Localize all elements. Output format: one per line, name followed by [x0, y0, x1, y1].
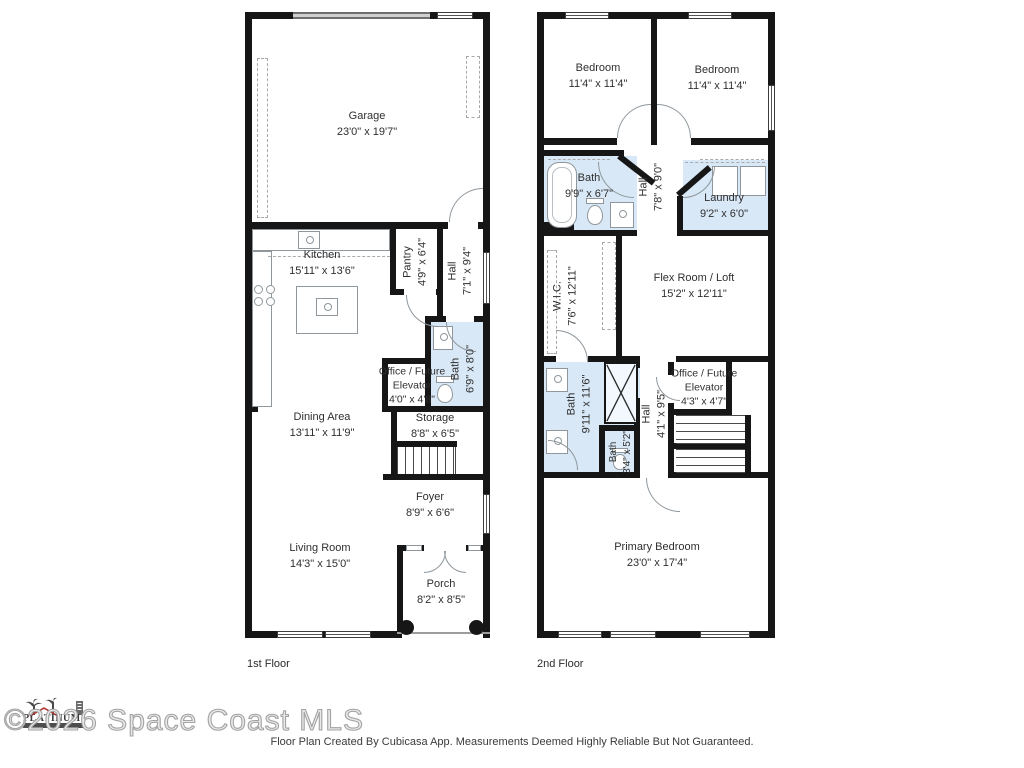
room-label-primary-bedroom: Primary Bedroom23'0" x 17'4" [614, 540, 700, 572]
room-dims: 9'2" x 6'0" [700, 207, 748, 223]
stairs [676, 449, 745, 473]
room-name: Laundry [700, 191, 748, 207]
room-name: Bedroom [688, 63, 747, 79]
room-label-kitchen: Kitchen15'11" x 13'6" [289, 248, 355, 280]
faucet-dot [306, 236, 314, 244]
room-dims: 23'0" x 17'4" [614, 556, 700, 572]
room-dims: 13'11" x 11'9" [290, 426, 355, 442]
stove-burner [254, 297, 263, 306]
wall [537, 12, 544, 638]
window [437, 12, 473, 19]
window [468, 545, 481, 551]
room-dims: 11'4" x 11'4" [569, 77, 628, 93]
room-label-garage: Garage23'0" x 19'7" [337, 109, 397, 141]
stove-burner [266, 297, 275, 306]
door-arc [556, 330, 588, 362]
room-dims: 4'3" x 4'7" [662, 395, 746, 409]
window [483, 252, 490, 304]
floor-label-1st: 1st Floor [247, 658, 290, 670]
room-name: Storage [411, 411, 459, 427]
room-label-bath: Bath9'9" x 6'7" [565, 171, 613, 203]
wall [599, 425, 605, 472]
room-label-pantry: Pantry4'9" x 6'4" [401, 238, 432, 286]
room-name: Kitchen [289, 248, 355, 264]
wall [397, 545, 403, 633]
floor-label-2nd: 2nd Floor [537, 658, 583, 670]
room-label-bath: Bath6'9" x 8'0" [449, 345, 480, 393]
room-label-wic: W.I.C.7'6" x 12'11" [551, 266, 582, 326]
wall [683, 230, 768, 236]
wall [616, 236, 622, 356]
room-name: Dining Area [290, 410, 355, 426]
room-name: Living Room [289, 541, 350, 557]
room-dims: 7'8" x 9'0" [652, 163, 667, 211]
wall [544, 138, 617, 145]
room-name: Hall [637, 163, 652, 211]
room-label-laundry: Laundry9'2" x 6'0" [700, 191, 748, 223]
porch-column [469, 620, 484, 635]
room-name: Office / Future Elevator [662, 367, 746, 395]
window [483, 494, 490, 534]
room-dims: 23'0" x 19'7" [337, 125, 397, 141]
shelf-dashed-line [685, 158, 765, 163]
door-arc [406, 295, 438, 327]
room-name: Bath [565, 171, 613, 187]
window [610, 631, 656, 638]
faucet-dot [619, 210, 627, 218]
closet-dashed-line [466, 56, 480, 118]
wall [745, 415, 751, 478]
wall [676, 356, 768, 362]
wall [691, 138, 768, 145]
room-dims: 9'11" x 11'6" [580, 375, 595, 434]
room-name: Garage [337, 109, 397, 125]
room-dims: 15'2" x 12'11" [654, 287, 735, 303]
porch-column [399, 620, 414, 635]
room-label-bedroom: Bedroom11'4" x 11'4" [569, 61, 628, 93]
room-name: Foyer [406, 490, 454, 506]
faucet-dot [554, 375, 562, 383]
window [688, 12, 732, 19]
room-name: Hall [640, 390, 655, 438]
room-label-flex-room: Flex Room / Loft15'2" x 12'11" [654, 271, 735, 303]
wall [390, 229, 396, 295]
toilet-bowl [587, 205, 603, 225]
room-dims: 3'4" x 5'2" [621, 430, 635, 474]
wall [390, 289, 404, 295]
room-label-storage: Storage8'8" x 6'5" [411, 411, 459, 443]
shower [604, 362, 638, 424]
door-arc [617, 104, 651, 138]
faucet-dot [324, 303, 332, 311]
room-dims: 15'11" x 13'6" [289, 264, 355, 280]
room-dims: 4'0" x 4'8" [374, 393, 450, 407]
wall [483, 12, 490, 638]
room-dims: 4'9" x 6'4" [416, 238, 431, 286]
faucet-dot [440, 333, 448, 341]
room-name: Porch [417, 577, 465, 593]
room-dims: 7'1" x 9'4" [461, 247, 476, 295]
door-arc [646, 478, 680, 512]
room-dims: 14'3" x 15'0" [289, 557, 350, 573]
window [277, 631, 323, 638]
wall [245, 12, 252, 638]
wall [245, 631, 402, 638]
disclaimer-text: Floor Plan Created By Cubicasa App. Meas… [0, 736, 1024, 748]
closet-dashed-line [257, 58, 268, 218]
room-label-bedroom: Bedroom11'4" x 11'4" [688, 63, 747, 95]
room-label-foyer: Foyer8'9" x 6'6" [406, 490, 454, 522]
room-label-living-room: Living Room14'3" x 15'0" [289, 541, 350, 573]
wall [544, 230, 637, 236]
floor-plan-image: Garage23'0" x 19'7" Kitchen15'11" x 13'6… [0, 0, 1024, 768]
window [768, 85, 775, 131]
room-name: W.I.C. [551, 266, 566, 326]
stairs [397, 447, 456, 474]
room-label-bath: Bath9'11" x 11'6" [565, 375, 596, 434]
room-dims: 8'9" x 6'6" [406, 506, 454, 522]
window [565, 12, 609, 19]
room-name: Bath [449, 345, 464, 393]
room-dims: 9'9" x 6'7" [565, 187, 613, 203]
door-arc [449, 188, 483, 222]
room-dims: 11'4" x 11'4" [688, 79, 747, 95]
wall [651, 138, 657, 145]
room-dims: 6'9" x 8'0" [464, 345, 479, 393]
room-dims: 8'8" x 6'5" [411, 427, 459, 443]
stairs [676, 415, 745, 444]
wall [478, 222, 483, 229]
room-label-dining-area: Dining Area13'11" x 11'9" [290, 410, 355, 442]
kitchen-counter [252, 251, 272, 407]
room-label-porch: Porch8'2" x 8'5" [417, 577, 465, 609]
room-label-bath: Bath3'4" x 5'2" [607, 430, 635, 474]
wall [383, 474, 483, 480]
room-label-hall: Hall7'8" x 9'0" [637, 163, 668, 211]
room-name: Bath [607, 430, 621, 474]
garage-door [293, 12, 430, 19]
wall [252, 222, 448, 229]
window [406, 545, 422, 551]
wall [382, 358, 431, 364]
room-name: Primary Bedroom [614, 540, 700, 556]
stove-burner [254, 285, 263, 294]
room-name: Flex Room / Loft [654, 271, 735, 287]
room-label-office: Office / Future Elevator4'0" x 4'8" [374, 365, 450, 408]
room-dims: 7'6" x 12'11" [566, 266, 581, 326]
closet-dashed-line [602, 242, 616, 330]
room-name: Hall [446, 247, 461, 295]
window [325, 631, 371, 638]
stove-burner [266, 285, 275, 294]
room-name: Office / Future Elevator [374, 365, 450, 393]
door-arc [444, 551, 466, 573]
room-name: Bedroom [569, 61, 628, 77]
room-name: Pantry [401, 238, 416, 286]
door-arc [657, 104, 691, 138]
door-arc [424, 551, 446, 573]
window [558, 631, 602, 638]
closet-dashed-line [548, 147, 610, 160]
window [700, 631, 750, 638]
room-dims: 8'2" x 8'5" [417, 593, 465, 609]
room-label-office: Office / Future Elevator4'3" x 4'7" [662, 367, 746, 410]
wall [544, 356, 556, 362]
room-name: Bath [565, 375, 580, 434]
watermark-copyright: ©2026 Space Coast MLS [4, 704, 364, 738]
room-label-hall: Hall7'1" x 9'4" [446, 247, 477, 295]
